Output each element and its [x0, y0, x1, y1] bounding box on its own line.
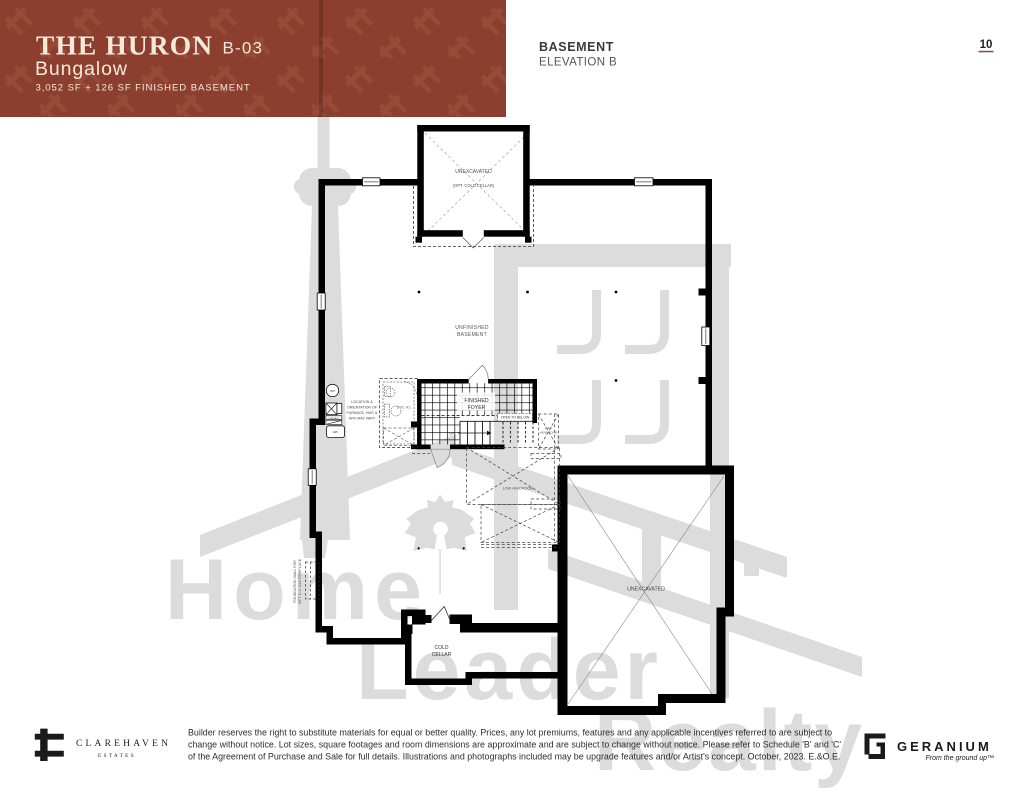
svg-text:OPT. D.V. GAS FIREPLACE: OPT. D.V. GAS FIREPLACE	[298, 558, 302, 604]
svg-text:FURNACE: FURNACE	[329, 417, 340, 420]
svg-text:Builder reserves the right to: Builder reserves the right to substitute…	[188, 728, 832, 738]
svg-text:LOW HEADROOM: LOW HEADROOM	[503, 487, 533, 491]
svg-text:BASEMENT: BASEMENT	[457, 332, 487, 338]
svg-text:UNEXCAVATED: UNEXCAVATED	[455, 169, 492, 175]
svg-text:THE HURON: THE HURON	[36, 30, 213, 61]
svg-text:ELEVATION B: ELEVATION B	[539, 57, 617, 69]
svg-text:HRV: HRV	[333, 430, 339, 434]
svg-text:FOYER: FOYER	[468, 405, 486, 411]
svg-text:of the Agreement of Purchase a: of the Agreement of Purchase and Sale fo…	[188, 752, 840, 762]
svg-text:HRV MAY VARY: HRV MAY VARY	[349, 417, 376, 421]
svg-text:ESTATES: ESTATES	[98, 753, 136, 759]
svg-text:10: 10	[980, 39, 993, 51]
svg-text:UP: UP	[449, 432, 455, 436]
svg-text:From the ground up™: From the ground up™	[926, 755, 994, 762]
svg-text:Bungalow: Bungalow	[35, 58, 128, 80]
svg-text:3,052 SF + 126 SF FINISHED BAS: 3,052 SF + 126 SF FINISHED BASEMENT	[36, 83, 251, 94]
svg-text:LOW: LOW	[545, 426, 552, 430]
svg-text:3 PC. R.I.: 3 PC. R.I.	[397, 406, 412, 410]
svg-text:FURNACE, HWT &: FURNACE, HWT &	[347, 411, 378, 415]
svg-text:change without notice. Lot siz: change without notice. Lot sizes, square…	[188, 740, 841, 750]
svg-text:B-03: B-03	[223, 39, 264, 58]
svg-text:ORIENTATION OF: ORIENTATION OF	[347, 406, 378, 410]
svg-text:BASEMENT: BASEMENT	[539, 40, 614, 54]
svg-text:FINISHED: FINISHED	[464, 398, 488, 404]
svg-text:CLAREHAVEN: CLAREHAVEN	[76, 739, 171, 749]
svg-text:OPEN TO BELOW: OPEN TO BELOW	[501, 416, 530, 420]
svg-text:HWT: HWT	[330, 390, 336, 393]
svg-text:UNFINISHED: UNFINISHED	[455, 325, 489, 331]
svg-text:(OPT. COLD CELLAR): (OPT. COLD CELLAR)	[453, 183, 495, 188]
svg-text:LOCATION &: LOCATION &	[351, 400, 373, 404]
svg-text:GERANIUM: GERANIUM	[897, 739, 992, 754]
svg-text:COLD: COLD	[435, 645, 449, 651]
svg-text:FOUNDATION WALL FOR: FOUNDATION WALL FOR	[293, 560, 297, 603]
svg-text:CELLAR: CELLAR	[432, 652, 452, 658]
svg-text:HEADROOM: HEADROOM	[540, 431, 558, 435]
svg-text:UNEXCAVATED: UNEXCAVATED	[627, 587, 665, 593]
